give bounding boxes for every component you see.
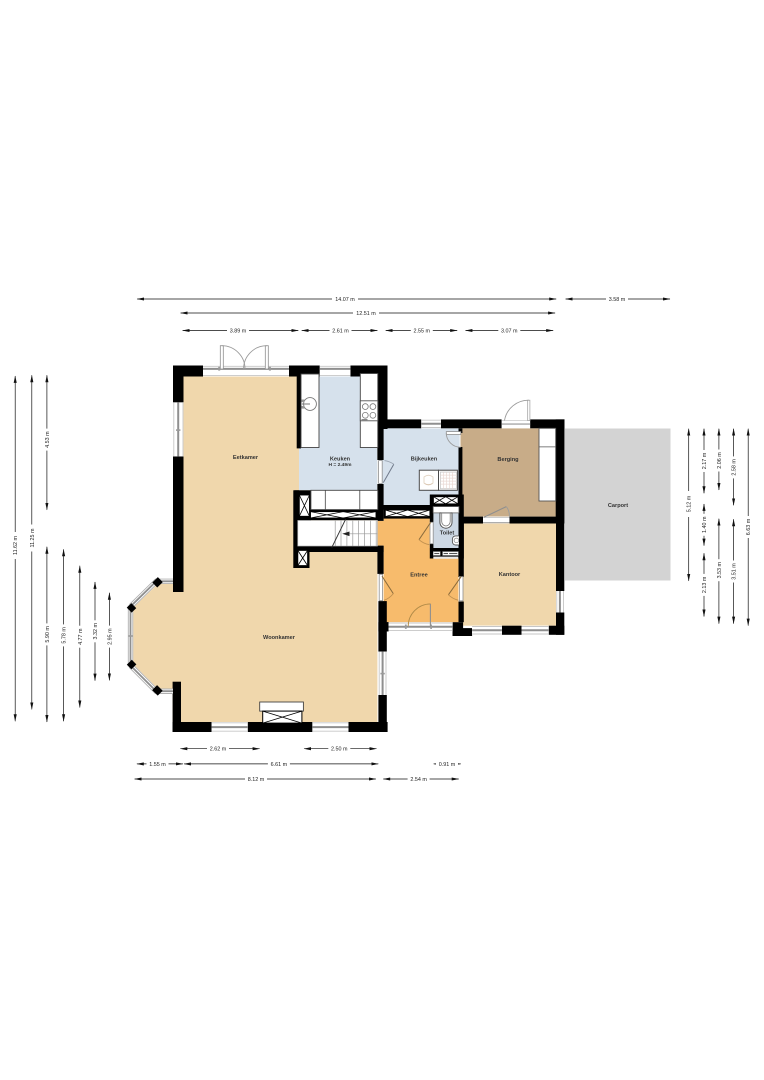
svg-text:Kantoor: Kantoor bbox=[499, 572, 521, 578]
svg-text:6.61 m: 6.61 m bbox=[271, 762, 288, 768]
svg-text:2.58 m: 2.58 m bbox=[732, 459, 738, 476]
svg-text:2.62 m: 2.62 m bbox=[210, 747, 227, 753]
svg-text:6.63 m: 6.63 m bbox=[746, 518, 752, 535]
svg-text:3.51 m: 3.51 m bbox=[732, 563, 738, 580]
svg-text:12.51 m: 12.51 m bbox=[356, 311, 376, 317]
svg-text:Berging: Berging bbox=[497, 457, 519, 463]
svg-text:Toilet: Toilet bbox=[440, 531, 455, 537]
svg-text:Entree: Entree bbox=[410, 573, 427, 579]
svg-text:8.12 m: 8.12 m bbox=[248, 777, 265, 783]
svg-text:2.61 m: 2.61 m bbox=[332, 329, 349, 335]
svg-text:5.78 m: 5.78 m bbox=[62, 627, 68, 644]
svg-text:5.90 m: 5.90 m bbox=[45, 626, 51, 643]
svg-text:Woonkamer: Woonkamer bbox=[263, 635, 296, 641]
svg-text:1.40 m: 1.40 m bbox=[702, 516, 708, 533]
svg-text:2.50 m: 2.50 m bbox=[331, 747, 348, 753]
svg-text:Carport: Carport bbox=[608, 503, 628, 509]
svg-text:2.13 m: 2.13 m bbox=[702, 576, 708, 593]
svg-text:3.58 m: 3.58 m bbox=[609, 297, 626, 303]
svg-text:1.55 m: 1.55 m bbox=[149, 762, 166, 768]
svg-text:3.07 m: 3.07 m bbox=[501, 329, 518, 335]
svg-text:4.53 m: 4.53 m bbox=[45, 431, 51, 448]
svg-text:3.32 m: 3.32 m bbox=[93, 623, 99, 640]
svg-text:Eetkamer: Eetkamer bbox=[233, 455, 259, 461]
svg-text:11.25 m: 11.25 m bbox=[30, 528, 36, 548]
svg-text:3.53 m: 3.53 m bbox=[717, 561, 723, 578]
svg-text:5.12 m: 5.12 m bbox=[687, 495, 693, 512]
svg-text:0.91 m: 0.91 m bbox=[439, 762, 456, 768]
svg-text:2.95 m: 2.95 m bbox=[107, 628, 113, 645]
svg-text:2.06 m: 2.06 m bbox=[717, 452, 723, 469]
svg-text:2.55 m: 2.55 m bbox=[414, 329, 431, 335]
svg-text:4.77 m: 4.77 m bbox=[78, 628, 84, 645]
svg-text:2.17 m: 2.17 m bbox=[702, 452, 708, 469]
svg-text:Bijkeuken: Bijkeuken bbox=[411, 457, 438, 463]
svg-text:14.07 m: 14.07 m bbox=[335, 297, 355, 303]
svg-text:3.89 m: 3.89 m bbox=[230, 329, 247, 335]
svg-text:11.62 m: 11.62 m bbox=[13, 535, 19, 555]
svg-text:H = 2.49m: H = 2.49m bbox=[329, 462, 353, 468]
svg-text:Keuken: Keuken bbox=[330, 457, 351, 463]
svg-text:2.54 m: 2.54 m bbox=[410, 777, 427, 783]
